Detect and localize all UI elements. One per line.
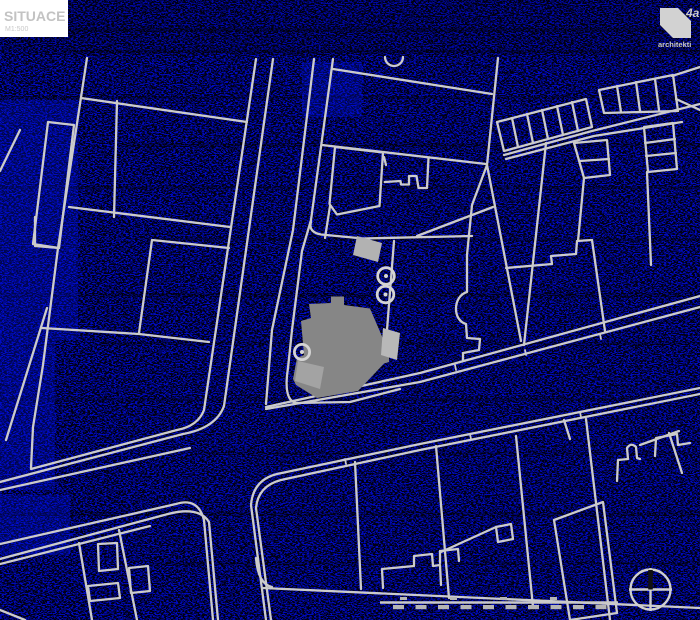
svg-text:architekti: architekti (658, 40, 691, 49)
svg-text:4a: 4a (685, 6, 700, 20)
svg-text:M1:500: M1:500 (5, 26, 28, 33)
svg-text:SITUACE: SITUACE (4, 8, 65, 24)
